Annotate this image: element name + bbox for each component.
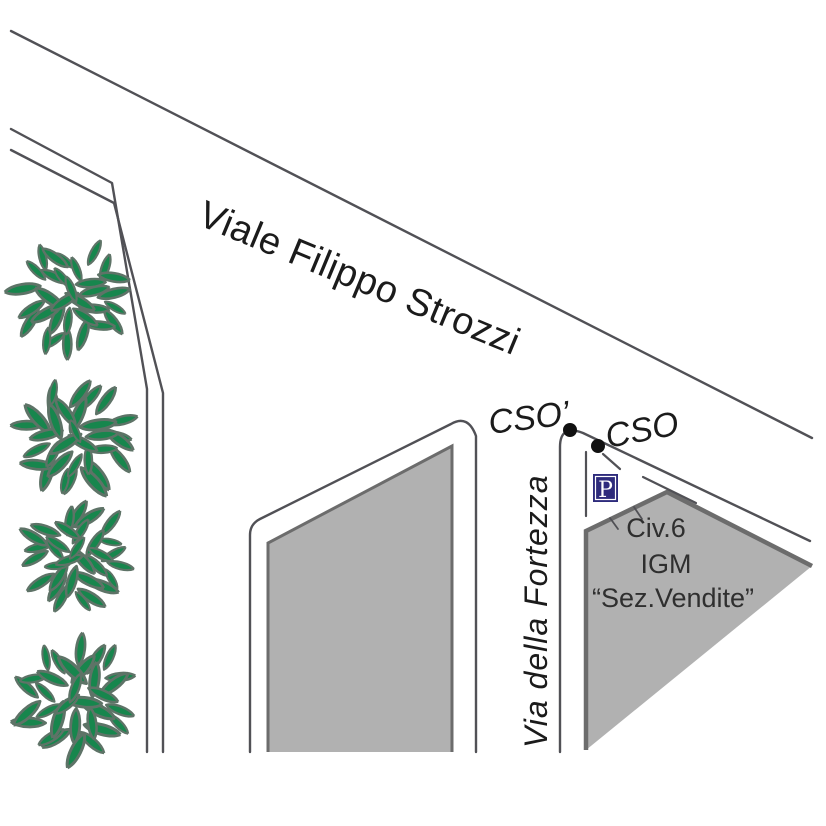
main-road-upper-edge (11, 31, 812, 438)
cso-dot (591, 439, 605, 453)
tree (10, 632, 135, 770)
igm-building-block (586, 492, 812, 750)
cso-label: CSO (602, 404, 682, 455)
street-map: P Viale Filippo Strozzi Via della Fortez… (0, 0, 826, 826)
tree (18, 499, 135, 614)
tree-leaf (68, 256, 84, 283)
tree-leaf (85, 239, 104, 267)
parking-icon: P (598, 478, 613, 503)
building-label-sez-vendite: “Sez.Vendite” (592, 583, 754, 613)
map-canvas: P Viale Filippo Strozzi Via della Fortez… (0, 0, 826, 826)
tree-row (4, 239, 139, 770)
building-label-civ6: Civ.6 (626, 513, 686, 543)
main-road-label: Viale Filippo Strozzi (193, 194, 526, 364)
tree (4, 239, 131, 360)
building-label-igm: IGM (641, 549, 692, 579)
cross-road-label: Via della Fortezza (518, 474, 554, 748)
tree-leaf (41, 645, 52, 672)
tree (10, 378, 138, 499)
driveway-right-line (603, 454, 620, 469)
middle-block (268, 446, 452, 752)
cso-prime-label: CSO’ (486, 394, 572, 442)
parking-sign: P (593, 474, 618, 503)
